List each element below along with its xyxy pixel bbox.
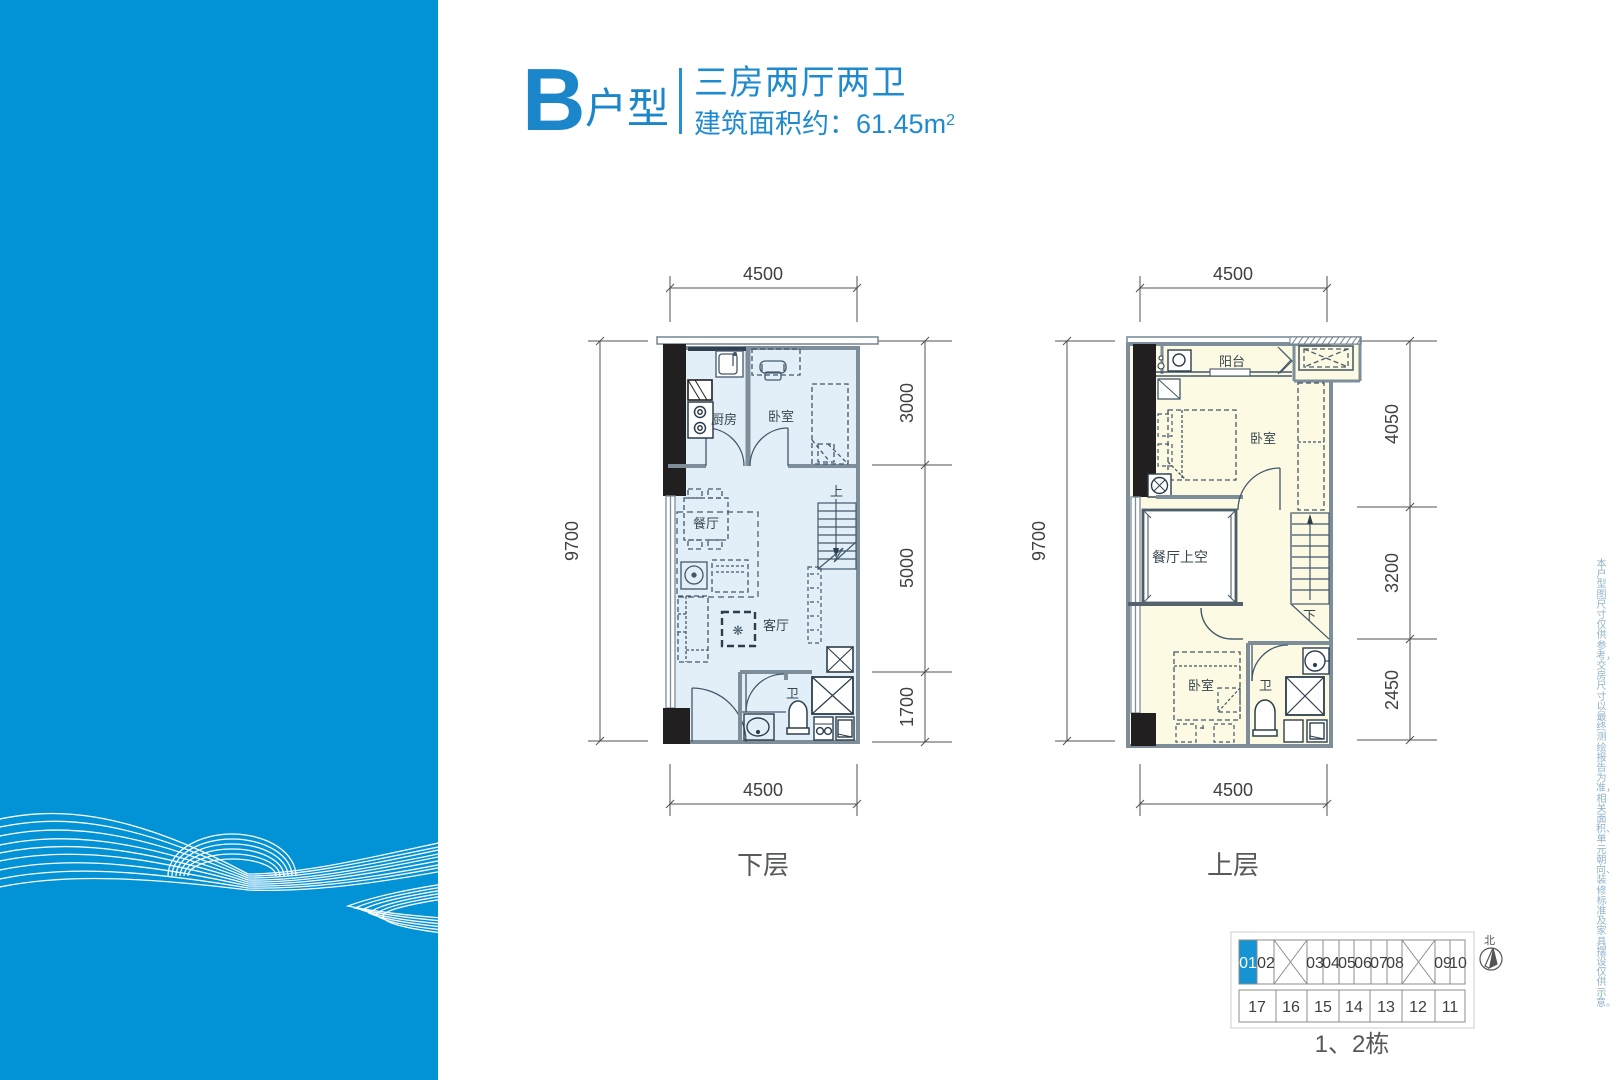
svg-text:12: 12 — [1409, 999, 1427, 1016]
svg-text:1、2栋: 1、2栋 — [1315, 1031, 1390, 1058]
svg-text:上: 上 — [830, 484, 843, 499]
svg-text:13: 13 — [1377, 999, 1395, 1016]
svg-text:11: 11 — [1442, 999, 1459, 1016]
svg-text:1700: 1700 — [897, 687, 917, 727]
svg-text:厨房: 厨房 — [711, 412, 737, 427]
svg-text:15: 15 — [1314, 999, 1332, 1016]
svg-text:3200: 3200 — [1382, 553, 1402, 593]
svg-text:❋: ❋ — [733, 623, 744, 638]
svg-text:9700: 9700 — [562, 521, 582, 561]
svg-text:卫: 卫 — [786, 686, 799, 701]
svg-text:5000: 5000 — [897, 548, 917, 588]
svg-text:14: 14 — [1345, 999, 1363, 1016]
svg-text:02: 02 — [1257, 955, 1275, 972]
svg-text:餐厅: 餐厅 — [693, 516, 719, 531]
svg-text:4050: 4050 — [1382, 404, 1402, 444]
svg-text:阳台: 阳台 — [1219, 354, 1245, 369]
svg-text:卧室: 卧室 — [1250, 431, 1276, 446]
svg-text:3000: 3000 — [897, 383, 917, 423]
svg-text:卧室: 卧室 — [768, 409, 794, 424]
svg-text:客厅: 客厅 — [763, 618, 789, 633]
svg-text:卧室: 卧室 — [1188, 678, 1214, 693]
svg-text:08: 08 — [1386, 955, 1404, 972]
svg-text:4500: 4500 — [1213, 780, 1253, 800]
svg-text:4500: 4500 — [743, 780, 783, 800]
svg-text:01: 01 — [1239, 955, 1257, 972]
svg-text:4500: 4500 — [1213, 264, 1253, 284]
svg-text:17: 17 — [1248, 999, 1266, 1016]
svg-text:10: 10 — [1449, 955, 1467, 972]
svg-text:餐厅上空: 餐厅上空 — [1152, 549, 1208, 565]
svg-text:北: 北 — [1484, 934, 1495, 947]
svg-text:16: 16 — [1282, 999, 1300, 1016]
svg-text:9700: 9700 — [1030, 521, 1049, 561]
svg-text:2450: 2450 — [1382, 670, 1402, 710]
svg-text:卫: 卫 — [1259, 678, 1272, 693]
svg-text:4500: 4500 — [743, 264, 783, 284]
